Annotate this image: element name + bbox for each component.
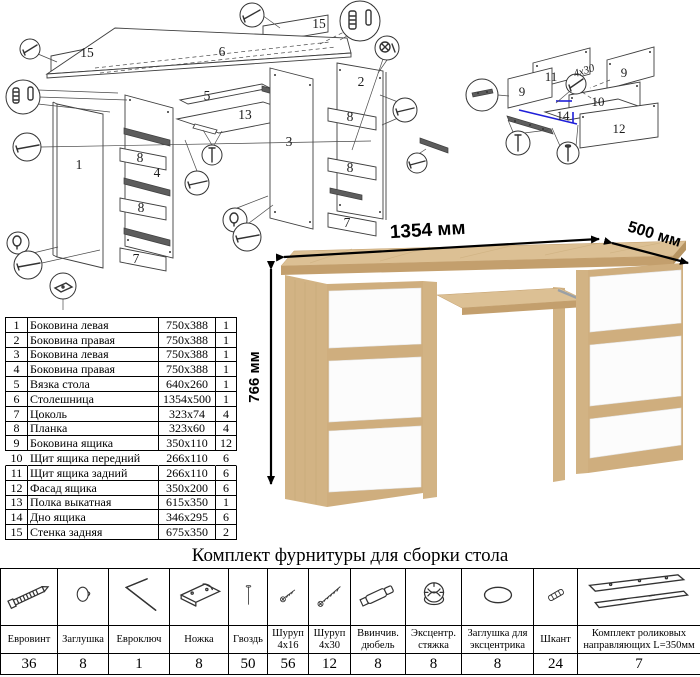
part-number: 8	[5, 422, 28, 437]
part-size: 615x350	[159, 496, 216, 511]
part-qty: 1	[216, 348, 237, 363]
cap-icon	[60, 570, 107, 620]
part-number: 12	[5, 481, 28, 496]
hardware-qty: 1	[109, 654, 170, 675]
part-name: Фасад ящика	[28, 481, 159, 496]
part-number: 14	[5, 510, 28, 525]
hex-key-icon	[111, 570, 168, 620]
hardware-name: Евроключ	[109, 626, 170, 654]
hardware-name: Ножка	[170, 626, 229, 654]
drawer-slides-icon	[580, 570, 699, 620]
part-number-label: 12	[613, 121, 626, 136]
hardware-qty: 8	[351, 654, 406, 675]
drawer-assembly-diagram: 4x30 1199101412	[466, 47, 658, 164]
hardware-cell	[268, 569, 309, 626]
parts-row: 14Дно ящика346x2956	[5, 510, 237, 525]
part-number-label: 11	[545, 69, 558, 84]
hardware-cell	[229, 569, 268, 626]
parts-row: 3Боковина левая750x3881	[5, 348, 237, 363]
parts-row: 13Полка выкатная615x3501	[5, 496, 237, 511]
parts-row: 2Боковина правая750x3881	[5, 333, 237, 348]
dowel-screw-icon	[353, 570, 404, 620]
part-number: 10	[5, 451, 28, 466]
part-name: Дно ящика	[28, 510, 159, 525]
part-size: 750x388	[159, 362, 216, 377]
part-number-label: 4	[154, 165, 161, 180]
part-name: Щит ящика передний	[28, 451, 159, 466]
hardware-name: Шуруп 4x16	[268, 626, 309, 654]
part-number: 1	[5, 317, 28, 333]
hardware-qty: 56	[268, 654, 309, 675]
parts-row: 1Боковина левая750x3881	[5, 317, 237, 333]
part-name: Боковина ящика	[28, 436, 159, 451]
hardware-cell	[1, 569, 58, 626]
part-qty: 1	[216, 333, 237, 348]
part-name: Полка выкатная	[28, 496, 159, 511]
part-number-label: 5	[204, 88, 211, 103]
part-number-label: 7	[133, 251, 140, 266]
part-qty: 2	[216, 525, 237, 540]
part-name: Боковина левая	[28, 317, 159, 333]
parts-list-table: 1Боковина левая750x38812Боковина правая7…	[5, 317, 237, 540]
part-size: 350x110	[159, 436, 216, 451]
part-size: 266x110	[159, 466, 216, 481]
part-number-label: 1	[76, 157, 83, 172]
hardware-cell	[109, 569, 170, 626]
part-name: Стенка задняя	[28, 525, 159, 540]
parts-row: 4Боковина правая750x3881	[5, 362, 237, 377]
part-number-label: 14	[557, 108, 571, 123]
part-name: Вязка стола	[28, 377, 159, 392]
part-size: 750x388	[159, 348, 216, 363]
part-number-label: 9	[519, 84, 526, 99]
part-number: 3	[5, 348, 28, 363]
cam-lock-icon	[408, 570, 460, 620]
hardware-cell	[462, 569, 534, 626]
part-number: 6	[5, 392, 28, 407]
parts-row: 9Боковина ящика350x11012	[5, 436, 237, 451]
part-qty: 1	[216, 362, 237, 377]
parts-row: 5Вязка стола640x2601	[5, 377, 237, 392]
hardware-cell	[578, 569, 700, 626]
part-number: 11	[5, 466, 28, 481]
hardware-cell	[58, 569, 109, 626]
part-size: 675x350	[159, 525, 216, 540]
part-number: 5	[5, 377, 28, 392]
part-number-label: 8	[137, 150, 144, 165]
nail-icon	[231, 570, 266, 620]
hardware-cell	[406, 569, 462, 626]
assembly-instruction-sheet: 156155133218487887	[0, 0, 700, 677]
part-number-label: 3	[286, 134, 293, 149]
part-qty: 4	[216, 422, 237, 437]
part-name: Боковина правая	[28, 362, 159, 377]
part-qty: 1	[216, 496, 237, 511]
part-name: Столешница	[28, 392, 159, 407]
part-name: Планка	[28, 422, 159, 437]
hardware-name: Евровинт	[1, 626, 58, 654]
width-dimension-label: 1354 мм	[389, 218, 466, 243]
parts-row: 7Цоколь323x744	[5, 407, 237, 422]
part-qty: 1	[216, 377, 237, 392]
part-number-label: 13	[238, 107, 252, 122]
part-qty: 1	[216, 392, 237, 407]
part-number-label: 15	[312, 16, 326, 31]
wood-dowel-icon	[536, 570, 576, 620]
part-number: 15	[5, 525, 28, 540]
parts-row: 8Планка323x604	[5, 422, 237, 437]
hardware-qty: 36	[1, 654, 58, 675]
part-qty: 12	[216, 436, 237, 451]
hardware-qty: 50	[229, 654, 268, 675]
hardware-name: Заглушка	[58, 626, 109, 654]
part-size: 346x295	[159, 510, 216, 525]
hardware-qty: 24	[534, 654, 578, 675]
part-number: 13	[5, 496, 28, 511]
hardware-cell	[534, 569, 578, 626]
hardware-name: Комплект роликовых направляющих L=350мм	[578, 626, 700, 654]
confirmat-screw-icon	[3, 570, 56, 620]
part-size: 750x388	[159, 333, 216, 348]
part-number-label: 8	[347, 109, 354, 124]
part-number-label: 6	[219, 44, 226, 59]
parts-row: 11Щит ящика задний266x1106	[5, 466, 237, 481]
parts-row: 12Фасад ящика350x2006	[5, 481, 237, 496]
part-number: 9	[5, 436, 28, 451]
part-name: Боковина правая	[28, 333, 159, 348]
hardware-qty: 12	[309, 654, 351, 675]
part-number-label: 10	[592, 94, 605, 109]
parts-row: 15Стенка задняя675x3502	[5, 525, 237, 540]
hardware-name: Шуруп 4x30	[309, 626, 351, 654]
product-render: 1354 мм 500 мм 766 мм	[246, 218, 688, 507]
height-dimension-label: 766 мм	[246, 351, 263, 402]
parts-row: 10Щит ящика передний266x1106	[5, 451, 237, 466]
part-name: Боковина левая	[28, 348, 159, 363]
screw-short-icon	[270, 570, 307, 620]
hardware-name: Гвоздь	[229, 626, 268, 654]
part-size: 350x200	[159, 481, 216, 496]
hardware-cell	[351, 569, 406, 626]
hardware-qty: 8	[462, 654, 534, 675]
part-number-label: 7	[344, 215, 351, 230]
hardware-cell	[309, 569, 351, 626]
hardware-kit-table: ЕвровинтЗаглушкаЕвроключНожкаГвоздьШуруп…	[0, 568, 700, 675]
hardware-qty: 7	[578, 654, 700, 675]
part-qty: 6	[216, 451, 237, 466]
foot-icon	[172, 570, 227, 620]
screw-long-icon	[311, 570, 349, 620]
part-number: 4	[5, 362, 28, 377]
part-size: 323x60	[159, 422, 216, 437]
hardware-qty: 8	[406, 654, 462, 675]
part-name: Щит ящика задний	[28, 466, 159, 481]
part-number-label: 8	[138, 200, 145, 215]
part-number: 2	[5, 333, 28, 348]
hardware-cell	[170, 569, 229, 626]
cam-cap-icon	[464, 570, 532, 620]
part-size: 750x388	[159, 317, 216, 333]
part-number-label: 8	[347, 160, 354, 175]
hardware-qty: 8	[58, 654, 109, 675]
part-qty: 6	[216, 481, 237, 496]
parts-row: 6Столешница1354x5001	[5, 392, 237, 407]
hardware-name: Шкант	[534, 626, 578, 654]
part-size: 1354x500	[159, 392, 216, 407]
hardware-name: Заглушка для эксцентрика	[462, 626, 534, 654]
part-size: 323x74	[159, 407, 216, 422]
part-size: 640x260	[159, 377, 216, 392]
part-name: Цоколь	[28, 407, 159, 422]
hardware-qty: 8	[170, 654, 229, 675]
part-number: 7	[5, 407, 28, 422]
hardware-name: Ввинчив. дюбель	[351, 626, 406, 654]
part-number-label: 9	[621, 65, 628, 80]
part-qty: 6	[216, 466, 237, 481]
part-qty: 1	[216, 317, 237, 333]
part-size: 266x110	[159, 451, 216, 466]
part-qty: 4	[216, 407, 237, 422]
hardware-kit-title: Комплект фурнитуры для сборки стола	[0, 545, 700, 567]
part-number-label: 2	[358, 74, 365, 89]
hardware-name: Эксцентр. стяжка	[406, 626, 462, 654]
part-number-label: 15	[80, 45, 94, 60]
part-qty: 6	[216, 510, 237, 525]
